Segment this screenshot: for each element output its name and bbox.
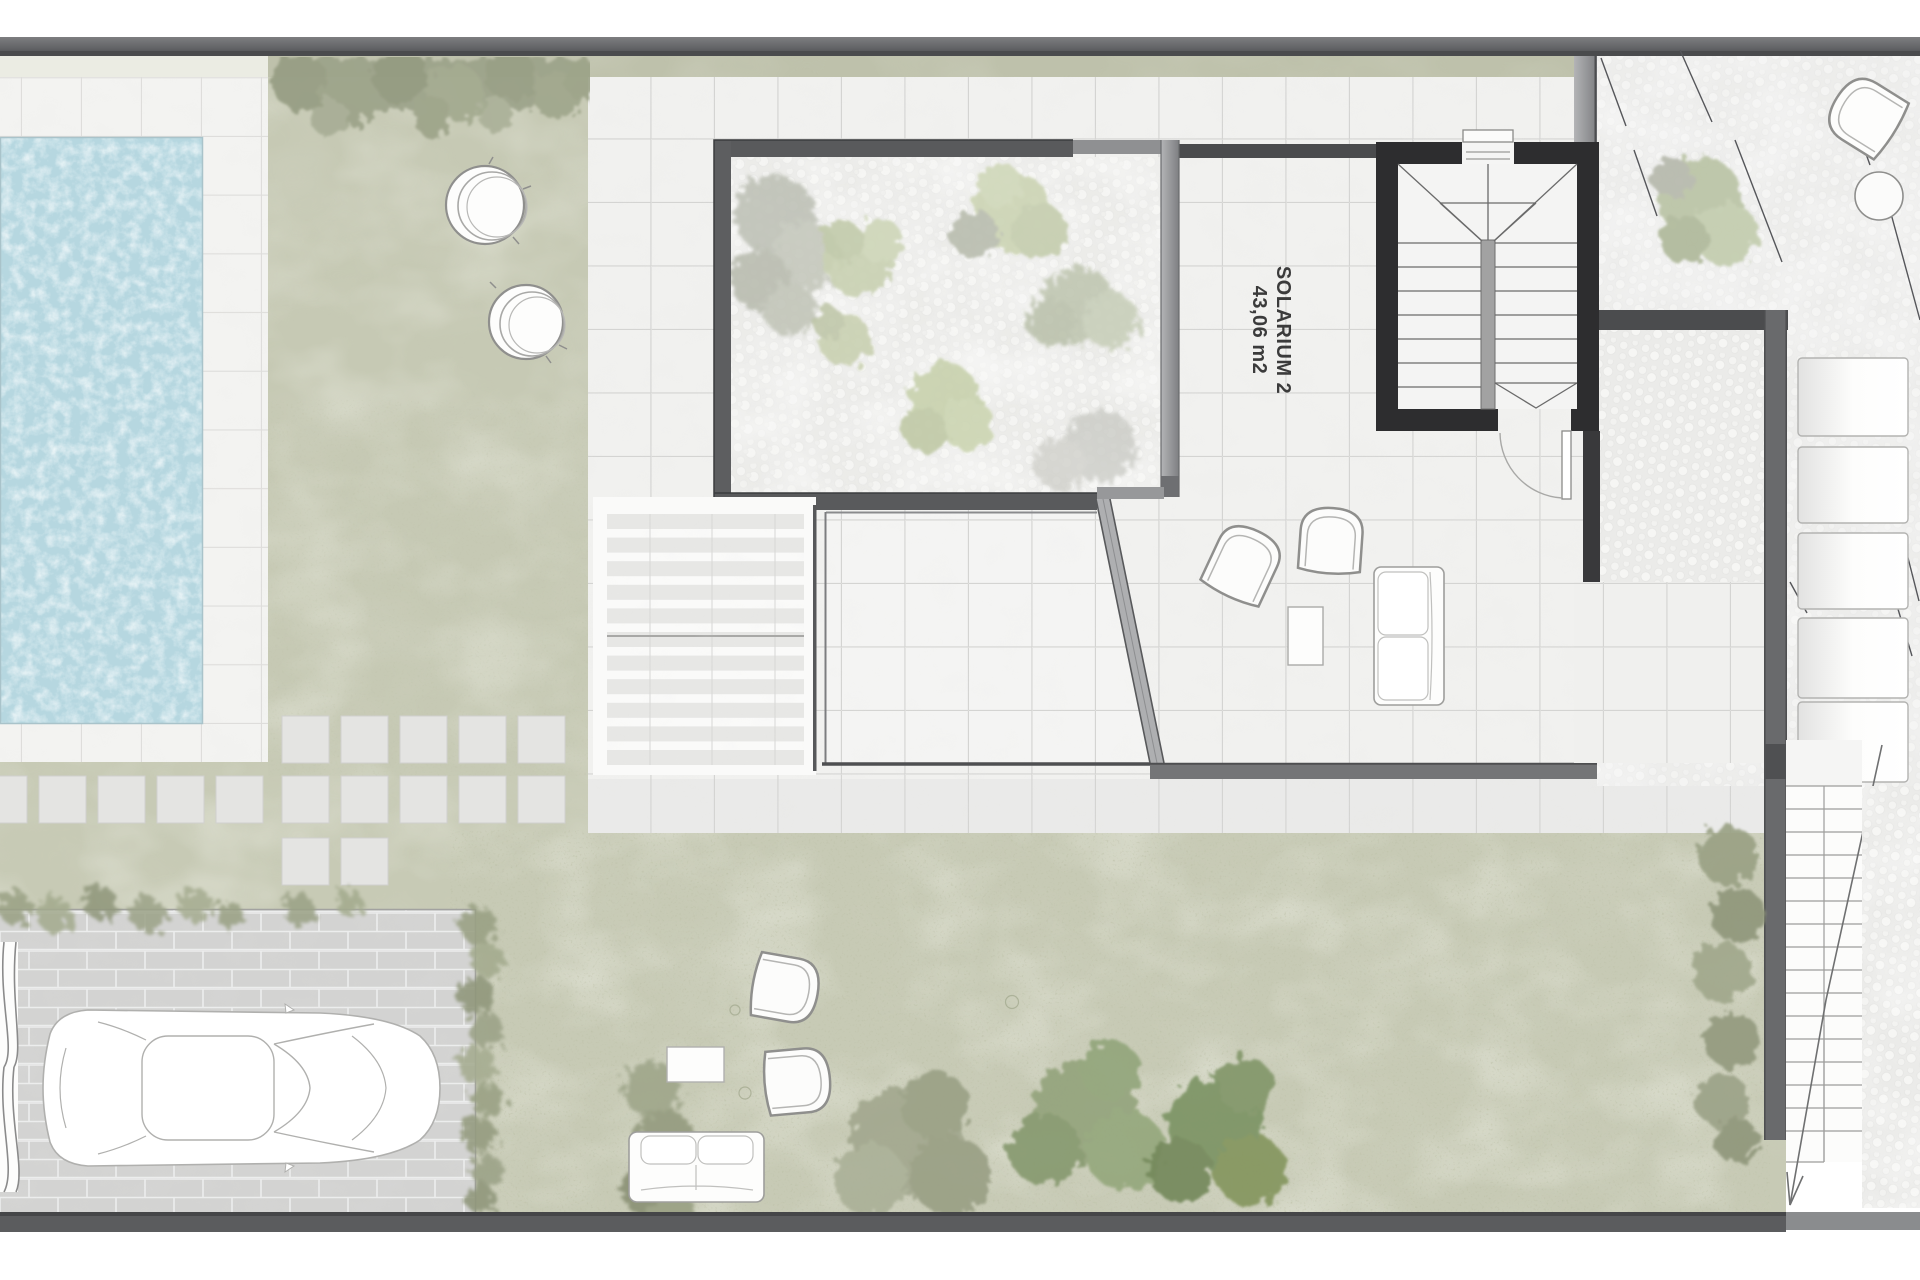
svg-text:SOLARIUM 2: SOLARIUM 2 [1272, 266, 1294, 394]
svg-text:43,06 m2: 43,06 m2 [1248, 286, 1270, 375]
